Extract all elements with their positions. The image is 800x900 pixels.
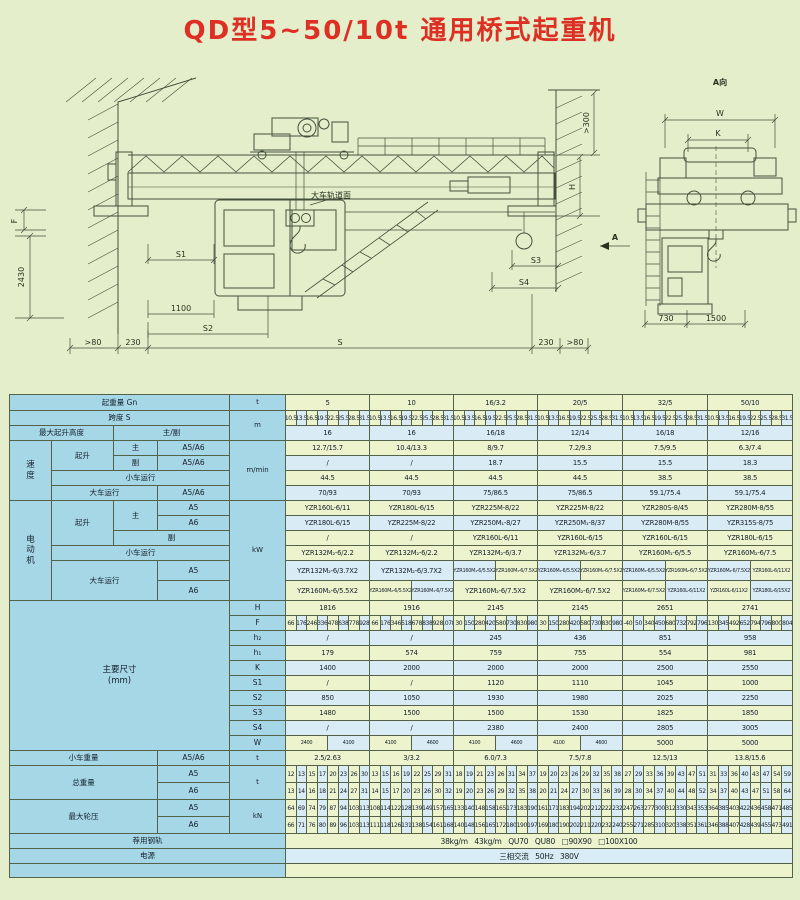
table-sub-cell: 74 (306, 800, 317, 816)
table-sub-cell: 492 (728, 616, 739, 630)
row-label: A6 (158, 516, 230, 531)
table-cell: 16 (286, 426, 370, 441)
table-sub-cell: 455 (760, 817, 771, 833)
table-sub-cell: 246 (306, 616, 317, 630)
table-cell: 75/86.5 (538, 486, 623, 501)
table-sub-cell: 172 (495, 817, 506, 833)
row-label: m/min (230, 441, 286, 501)
table-sub-cell: 69 (296, 800, 307, 816)
table-sub-cell: 148 (474, 800, 485, 816)
table-sub-cell: 44 (675, 783, 686, 799)
table-cell: 5000 (708, 736, 793, 751)
table-sub-cell: 420 (485, 616, 496, 630)
table-sub-cell: 407 (728, 817, 739, 833)
dim-label-span-s: S (337, 338, 342, 347)
table-sub-cell: 171 (548, 800, 559, 816)
table-sub-group: 1213151720232630 (286, 766, 370, 783)
table-sub-cell: 16.5 (558, 411, 569, 425)
table-cell: 12.5/13 (623, 751, 708, 766)
table-cell: 554 (623, 646, 708, 661)
dim-label-gt80-left: >80 (85, 338, 102, 347)
trolley (250, 118, 354, 159)
table-sub-cell: 31.5 (443, 411, 454, 425)
table-sub-group: 364385403422436458471485 (708, 800, 793, 817)
view-a-label: A (612, 233, 619, 242)
table-cell: YZR180L-6/15 (286, 516, 370, 531)
table-sub-cell: 15 (380, 766, 391, 782)
table-cell: 2550 (708, 661, 793, 676)
table-sub-group: 2021242730333639 (538, 783, 623, 800)
dim-label-230-right: 230 (538, 338, 553, 347)
table-sub-cell: 39 (611, 783, 622, 799)
table-sub-cell: 15 (380, 783, 391, 799)
table-sub-cell: 15 (306, 766, 317, 782)
table-sub-cell: 247 (623, 800, 633, 816)
table-cell: 7.2/9.3 (538, 441, 623, 456)
table-sub-cell: 168 (443, 817, 454, 833)
side-right-buffer (788, 209, 796, 222)
table-sub-cell: 13.5 (548, 411, 559, 425)
table-sub-cell: 31 (506, 766, 517, 782)
table-sub-cell: 31.5 (527, 411, 538, 425)
table-cell: 2000 (370, 661, 454, 676)
table-sub-group: 130345492652794796800804 (708, 616, 793, 631)
table-sub-cell: 183 (558, 800, 569, 816)
row-label: A6 (158, 817, 230, 834)
table-split-cell: YZR160M₂-6/7.5X2 (623, 581, 665, 600)
table-cell: 16/18 (454, 426, 538, 441)
table-sub-group: 10.513.516.519.522.525.528.531.5 (370, 411, 454, 426)
table-split-cell: 4100 (454, 736, 495, 750)
table-cell: 958 (708, 631, 793, 646)
table-sub-cell: 190 (558, 817, 569, 833)
table-sub-group: 3437404347515864 (708, 783, 793, 800)
table-split-group: YZR160M₂-6/7.5X2YZR160L-6/11X2 (708, 561, 793, 581)
table-sub-cell: 222 (601, 800, 612, 816)
table-sub-cell: 194 (569, 800, 580, 816)
row-label: kW (230, 501, 286, 601)
table-sub-cell: 149 (422, 800, 433, 816)
table-sub-group: 2830343740444852 (623, 783, 708, 800)
table-sub-cell: 20 (327, 766, 338, 782)
table-sub-cell: 25.5 (675, 411, 686, 425)
table-sub-cell: 32 (590, 766, 601, 782)
table-sub-cell: 450 (654, 616, 665, 630)
left-wall-hatch (66, 78, 192, 318)
row-label: 起重量 Gn (10, 395, 230, 411)
table-split-group: YZR160L-6/11X2YZR180L-6/15X2 (708, 581, 793, 601)
table-split-cell: YZR160L-6/11X2 (750, 561, 793, 580)
table-sub-cell: 838 (422, 616, 433, 630)
table-sub-cell: 796 (760, 616, 771, 630)
table-sub-cell: 161 (432, 817, 443, 833)
table-cell: 1480 (286, 706, 370, 721)
row-label: A5/A6 (158, 486, 230, 501)
table-cell: 3005 (708, 721, 793, 736)
table-sub-cell: 24 (338, 783, 349, 799)
row-label: A5 (158, 800, 230, 817)
table-sub-cell: 23 (474, 783, 485, 799)
side-end-view (638, 114, 796, 328)
table-sub-cell: 133 (454, 800, 464, 816)
table-sub-cell: 156 (474, 817, 485, 833)
table-sub-cell: 19 (538, 766, 548, 782)
table-split-group: YZR160M₁-6/5.5X2YZR160M₂-6/7.5X2 (623, 561, 708, 581)
table-sub-group: 2729333639434751 (623, 766, 708, 783)
table-sub-cell: 30 (432, 783, 443, 799)
table-sub-group: 1315161922252931 (370, 766, 454, 783)
table-sub-cell: 169 (538, 817, 548, 833)
driver-cab (215, 200, 345, 310)
right-runway-corbel (508, 206, 556, 216)
row-label: 主 (114, 441, 158, 456)
table-cell: 2025 (623, 691, 708, 706)
table-sub-cell: 25.5 (506, 411, 517, 425)
table-cell: 3/3.2 (370, 751, 454, 766)
table-cell: 7.5/7.8 (538, 751, 623, 766)
table-cell: / (370, 531, 454, 546)
table-sub-cell: 34 (708, 783, 718, 799)
table-sub-cell: 422 (739, 800, 750, 816)
row-label: S4 (230, 721, 286, 736)
spec-table: 起重量 Gnt51016/3.220/532/550/10跨度 Sm10.513… (9, 394, 793, 878)
table-cell: YZR160M₂-6/7.5X2 (538, 581, 623, 601)
table-cell: 12/16 (708, 426, 793, 441)
table-cell: YZR132M₂-6/2.2 (286, 546, 370, 561)
table-sub-cell: 10.5 (623, 411, 633, 425)
table-sub-cell: 804 (781, 616, 792, 630)
table-cell: 18.7 (454, 456, 538, 471)
table-sub-cell: 111 (370, 817, 380, 833)
walkway-railing (358, 138, 545, 155)
table-split-cell: 4100 (538, 736, 580, 750)
table-sub-cell: 21 (327, 783, 338, 799)
table-sub-cell: 29 (495, 783, 506, 799)
view-a-arrowhead (600, 242, 609, 250)
table-sub-cell: 436 (750, 800, 761, 816)
table-sub-cell: 830 (601, 616, 612, 630)
table-cell: YZR160M₂-6/7.5X2 (454, 581, 538, 601)
table-cell: YZR280M-8/55 (708, 501, 793, 516)
table-sub-cell: 471 (771, 800, 782, 816)
row-label: H (230, 601, 286, 616)
dim-label-f: F (10, 218, 19, 223)
table-sub-cell: 43 (739, 783, 750, 799)
table-sub-cell: 66 (286, 616, 296, 630)
table-sub-cell: 796 (696, 616, 707, 630)
table-cell: 759 (454, 646, 538, 661)
table-split-group: 24004100 (286, 736, 370, 751)
table-wide-cell (286, 864, 793, 878)
table-cell: 245 (454, 631, 538, 646)
table-sub-cell: 36 (654, 766, 665, 782)
table-wide-cell: 38kg/m 43kg/m QU70 QU80 □90X90 □100X100 (286, 834, 793, 849)
dim-label-730: 730 (658, 314, 673, 323)
table-cell: 850 (286, 691, 370, 706)
table-sub-cell: 364 (708, 800, 718, 816)
table-sub-cell: 13.5 (718, 411, 729, 425)
table-sub-cell: 458 (760, 800, 771, 816)
table-split-cell: YZR160M₂-6/7.5X2 (708, 561, 750, 580)
table-sub-cell: 285 (643, 817, 654, 833)
table-cell: 1980 (538, 691, 623, 706)
table-sub-cell: 59 (781, 766, 792, 782)
table-sub-cell: 29 (432, 766, 443, 782)
table-sub-cell: 28.5 (686, 411, 697, 425)
table-split-cell: YZR160L-6/11X2 (708, 581, 750, 600)
table-sub-cell: 10.5 (538, 411, 548, 425)
table-sub-cell: 66 (286, 817, 296, 833)
table-sub-cell: 31 (708, 766, 718, 782)
table-sub-cell: 118 (380, 817, 391, 833)
table-sub-cell: 518 (401, 616, 412, 630)
table-sub-cell: 40 (728, 783, 739, 799)
table-sub-cell: 428 (739, 817, 750, 833)
table-split-cell: 2400 (286, 736, 327, 750)
table-sub-group: 161171183194202212222232 (538, 800, 623, 817)
table-cell: 2651 (623, 601, 708, 616)
table-sub-group: 169180190202211220232240 (538, 817, 623, 834)
table-sub-cell: 345 (718, 616, 729, 630)
table-sub-cell: -40 (623, 616, 633, 630)
table-sub-group: 1920232629323538 (538, 766, 623, 783)
table-sub-cell: 76 (306, 817, 317, 833)
table-sub-cell: 1078 (443, 616, 454, 630)
table-sub-cell: 154 (422, 817, 433, 833)
row-label: 大车运行 (52, 561, 158, 601)
table-sub-cell: 255 (623, 817, 633, 833)
table-sub-cell: 28.5 (516, 411, 527, 425)
table-sub-cell: 25.5 (338, 411, 349, 425)
table-sub-cell: 22.5 (750, 411, 761, 425)
table-cell: YZR160L-6/11 (286, 501, 370, 516)
table-sub-cell: 36 (728, 766, 739, 782)
table-cell: 436 (538, 631, 623, 646)
table-cell: / (286, 721, 370, 736)
table-split-cell: YZR160M₁-6/7.5X2 (580, 561, 623, 580)
row-label: A5 (158, 501, 230, 516)
row-label (10, 864, 286, 878)
table-sub-cell: 27 (348, 783, 359, 799)
table-cell: YZR180L-6/15 (708, 531, 793, 546)
table-cell: YZR225M-8/22 (370, 516, 454, 531)
table-sub-group: 133140148158165173183190 (454, 800, 538, 817)
table-sub-cell: 310 (654, 817, 665, 833)
dim-label-s3: S3 (531, 256, 541, 265)
table-cell: YZR160L-6/15 (623, 531, 708, 546)
table-cell: 7.5/9.5 (623, 441, 708, 456)
table-cell: 10.4/13.3 (370, 441, 454, 456)
table-sub-cell: 420 (569, 616, 580, 630)
table-sub-cell: 19.5 (317, 411, 328, 425)
table-cell: 981 (708, 646, 793, 661)
dim-label-k: K (715, 129, 721, 138)
table-sub-cell: 403 (728, 800, 739, 816)
table-sub-cell: 10.5 (708, 411, 718, 425)
page: QD型5~50/10t 通用桥式起重机 (0, 0, 800, 900)
table-sub-cell: 202 (569, 817, 580, 833)
table-split-cell: YZR160L-6/11X2 (665, 581, 708, 600)
row-label: 总重量 (10, 766, 158, 800)
table-sub-cell: 39 (665, 766, 676, 782)
table-sub-cell: 346 (390, 616, 401, 630)
table-cell: 2805 (623, 721, 708, 736)
table-sub-cell: 792 (686, 616, 697, 630)
table-sub-cell: 280 (474, 616, 485, 630)
table-sub-cell: 22.5 (495, 411, 506, 425)
table-sub-cell: 638 (338, 616, 349, 630)
row-label: 荐用钢轨 (10, 834, 286, 849)
table-cell: YZR180L-6/15 (370, 501, 454, 516)
table-sub-group: 255271285310320338351361 (623, 817, 708, 834)
table-cell: YZR132M₂-6/3.7X2 (286, 561, 370, 581)
table-sub-cell: 491 (781, 817, 792, 833)
table-cell: 1825 (623, 706, 708, 721)
table-sub-cell: 30 (359, 766, 370, 782)
table-sub-cell: 89 (327, 817, 338, 833)
table-cell: 16/18 (623, 426, 708, 441)
table-sub-cell: 928 (359, 616, 370, 630)
table-sub-cell: 29 (580, 766, 591, 782)
table-cell: 20/5 (538, 395, 623, 411)
table-sub-cell: 19.5 (401, 411, 412, 425)
table-cell: 59.1/75.4 (623, 486, 708, 501)
table-sub-cell: 263 (633, 800, 644, 816)
table-sub-cell: 25.5 (422, 411, 433, 425)
row-label: S2 (230, 691, 286, 706)
table-sub-cell: 176 (296, 616, 307, 630)
table-sub-cell: 197 (527, 817, 538, 833)
row-label: A5 (158, 561, 230, 581)
table-sub-cell: 385 (718, 800, 729, 816)
table-cell: 1916 (370, 601, 454, 616)
table-sub-cell: 22.5 (327, 411, 338, 425)
table-sub-cell: 351 (686, 817, 697, 833)
table-sub-cell: 13 (296, 766, 307, 782)
table-sub-cell: 652 (739, 616, 750, 630)
dim-label-gt80-right: >80 (567, 338, 584, 347)
table-sub-cell: 54 (771, 766, 782, 782)
table-split-group: YZR160M₁-6/5.5X2YZR160M₁-6/7.5X2 (538, 561, 623, 581)
table-sub-cell: 28.5 (601, 411, 612, 425)
dim-label-s2: S2 (203, 324, 213, 333)
table-cell: 18.3 (708, 456, 793, 471)
table-cell: 5000 (623, 736, 708, 751)
table-sub-cell: 211 (580, 817, 591, 833)
table-sub-cell: 165 (443, 800, 454, 816)
table-split-group: 41004600 (538, 736, 623, 751)
table-sub-cell: 27 (623, 766, 633, 782)
table-sub-cell: 980 (527, 616, 538, 630)
table-cell: 38.5 (708, 471, 793, 486)
side-cross-girder (646, 204, 788, 230)
row-label: h₁ (230, 646, 286, 661)
table-sub-cell: 126 (390, 817, 401, 833)
table-sub-cell: 19.5 (739, 411, 750, 425)
table-sub-cell: 38 (611, 766, 622, 782)
table-sub-group: 3133364043475459 (708, 766, 793, 783)
row-label: t (230, 766, 286, 800)
row-label: t (230, 395, 286, 411)
table-sub-cell: 19.5 (654, 411, 665, 425)
table-sub-cell: 800 (771, 616, 782, 630)
table-sub-cell: 30 (633, 783, 644, 799)
table-sub-cell: 28.5 (771, 411, 782, 425)
table-sub-cell: 26 (485, 783, 496, 799)
table-sub-cell: 27 (569, 783, 580, 799)
table-cell: / (286, 631, 370, 646)
table-cell: 38.5 (623, 471, 708, 486)
table-sub-cell: 32 (443, 783, 454, 799)
table-sub-cell: 18 (454, 766, 464, 782)
table-sub-cell: 33 (718, 766, 729, 782)
table-cell: YZR132M₂-6/3.7X2 (370, 561, 454, 581)
table-sub-group: 30150280420580730830980 (454, 616, 538, 631)
table-sub-cell: 130 (708, 616, 718, 630)
table-split-group: 41004600 (454, 736, 538, 751)
table-sub-cell: 128 (401, 800, 412, 816)
table-sub-group: 111118126131138154161168 (370, 817, 454, 834)
table-cell: 1930 (454, 691, 538, 706)
table-cell: 1850 (708, 706, 793, 721)
table-cell: YZR160M₂-6/7.5 (708, 546, 793, 561)
rail-surface-label: 大车轨道面 (311, 190, 351, 200)
table-sub-cell: 29 (633, 766, 644, 782)
table-cell: YZR225M-8/22 (454, 501, 538, 516)
table-sub-group: 10.513.516.519.522.525.528.531.5 (623, 411, 708, 426)
table-sub-cell: 277 (643, 800, 654, 816)
table-sub-cell: 40 (739, 766, 750, 782)
table-split-cell: YZR180L-6/15X2 (750, 581, 793, 600)
table-cell: 16 (370, 426, 454, 441)
table-sub-cell: 47 (760, 766, 771, 782)
table-sub-cell: 40 (665, 783, 676, 799)
table-sub-cell: 28.5 (348, 411, 359, 425)
table-sub-cell: 220 (590, 817, 601, 833)
table-sub-cell: 30 (538, 616, 548, 630)
table-sub-cell: 138 (411, 817, 422, 833)
row-label: 副 (114, 456, 158, 471)
table-sub-cell: 13.5 (380, 411, 391, 425)
table-sub-cell: 473 (771, 817, 782, 833)
table-sub-cell: 312 (665, 800, 676, 816)
row-label: m (230, 411, 286, 441)
dim-label-1100: 1100 (171, 304, 191, 313)
table-sub-group: 1314161821242731 (286, 783, 370, 800)
table-sub-group: 10.513.516.519.522.525.528.531.5 (454, 411, 538, 426)
table-sub-cell: 66 (370, 616, 380, 630)
table-sub-cell: 108 (370, 800, 380, 816)
table-sub-cell: 28 (623, 783, 633, 799)
spec-table-body: 起重量 Gnt51016/3.220/532/550/10跨度 Sm10.513… (10, 395, 793, 878)
table-sub-cell: 23 (558, 766, 569, 782)
table-sub-cell: 43 (675, 766, 686, 782)
table-cell: 13.8/15.6 (708, 751, 793, 766)
table-split-cell: 4600 (495, 736, 537, 750)
table-sub-cell: 165 (485, 817, 496, 833)
table-sub-cell: 18 (317, 783, 328, 799)
table-sub-cell: 58 (771, 783, 782, 799)
table-cell: 2380 (454, 721, 538, 736)
table-sub-cell: 16.5 (474, 411, 485, 425)
table-sub-cell: 202 (580, 800, 591, 816)
table-sub-cell: 21 (548, 783, 559, 799)
table-sub-cell: 361 (696, 817, 707, 833)
row-label: 小车重量 (10, 751, 158, 766)
table-sub-cell: 23 (411, 783, 422, 799)
table-cell: 2145 (454, 601, 538, 616)
table-sub-cell: 232 (601, 817, 612, 833)
